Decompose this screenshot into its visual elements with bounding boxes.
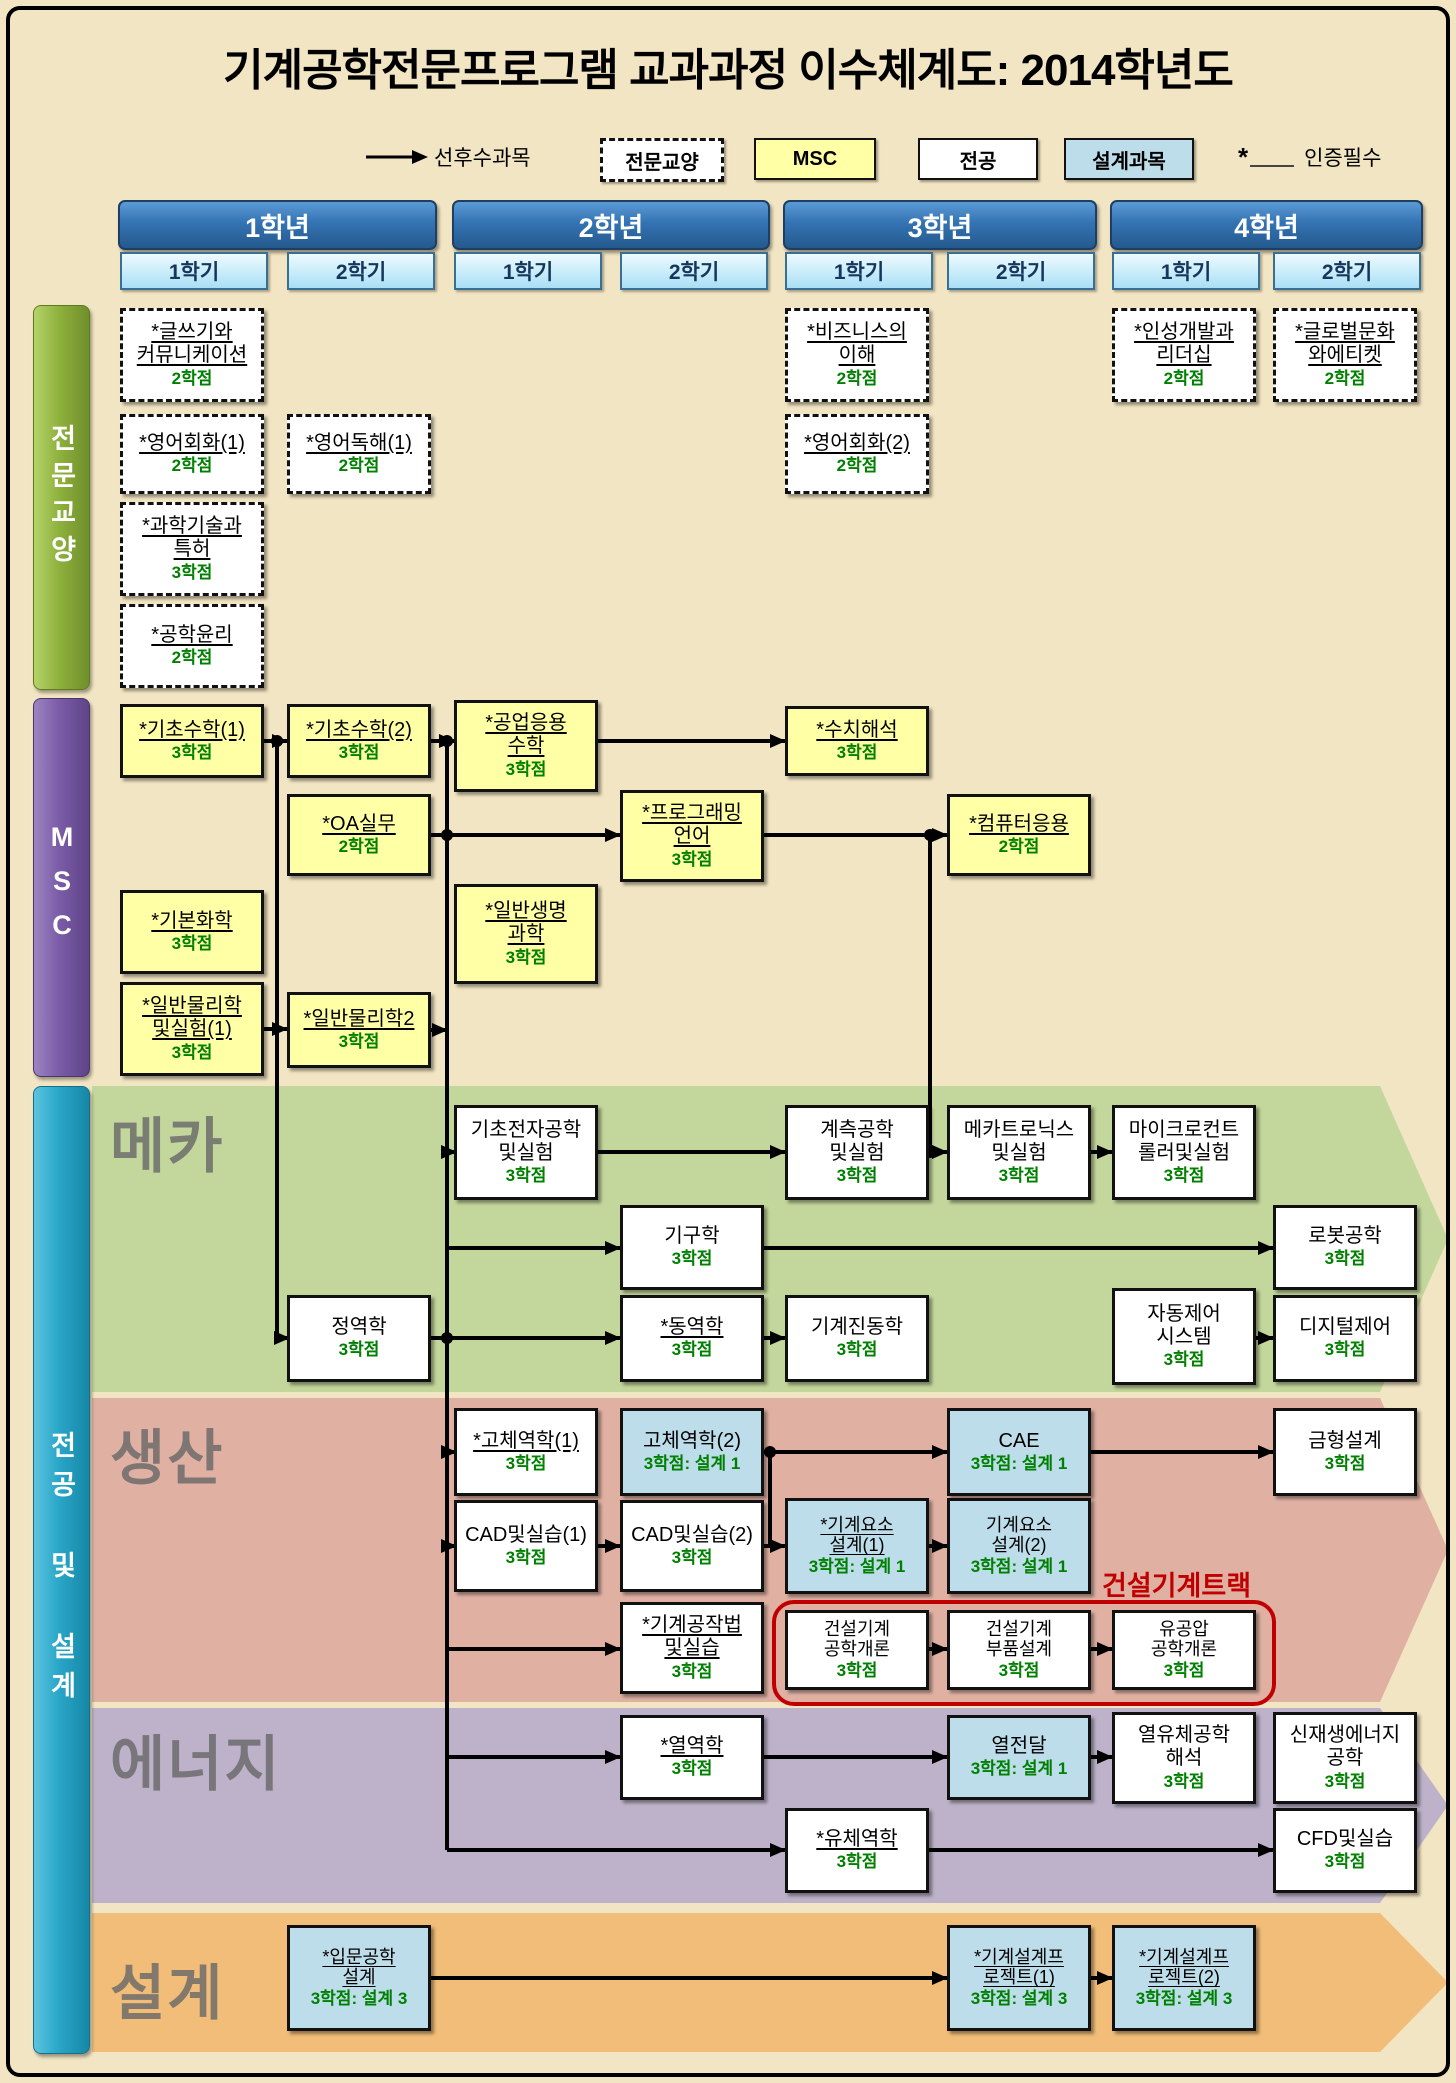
course-design-project-2: *기계설계프로젝트(2)3학점: 설계 3 [1112,1925,1256,2031]
course-title-line: 기계진동학 [811,1316,903,1339]
course-title-line: 롤러및실험 [1138,1142,1230,1165]
course-instrumentation-lab: 계측공학및실험3학점 [785,1105,929,1200]
course-title-line: 정역학 [331,1316,386,1339]
course-credit: 3학점 [999,1660,1040,1681]
course-programming-language: *프로그래밍언어3학점 [620,790,764,882]
course-title-line: *기계공작법 [642,1614,742,1637]
course-title-line: *OA실무 [322,813,395,836]
course-title-line: 공학개론 [824,1639,890,1660]
course-manufacturing-practice: *기계공작법및실습3학점 [620,1602,764,1694]
legend-msc-box: MSC [754,138,876,180]
course-credit: 3학점 [837,1660,878,1681]
course-title-line: CAD및실습(1) [465,1524,587,1547]
course-mechanical-vibration: 기계진동학3학점 [785,1295,929,1382]
curriculum-flowchart-page: 기계공학전문프로그램 교과과정 이수체계도: 2014학년도 선후수과목 전문교… [0,0,1456,2083]
course-credit: 3학점: 설계 1 [971,1453,1068,1474]
course-title-line: *기본화학 [151,910,232,933]
junction-dot [441,829,453,841]
course-thermofluid-analysis: 열유체공학해석3학점 [1112,1712,1256,1804]
legend-cert-label: 인증필수 [1304,142,1381,172]
course-general-physics-lab-1: *일반물리학및실험(1)3학점 [120,982,264,1076]
course-cad-practice-2: CAD및실습(2)3학점 [620,1500,764,1592]
course-machine-element-design-1: *기계요소설계(1)3학점: 설계 1 [785,1498,929,1594]
course-title-line: 수학 [508,735,545,758]
course-title-line: *기계요소 [820,1515,893,1536]
course-title-line: 이해 [839,344,876,367]
course-personality-leadership: *인성개발과리더십2학점 [1112,308,1256,402]
course-credit: 2학점 [339,836,380,857]
course-credit: 3학점 [837,742,878,763]
course-credit: 2학점 [1325,368,1366,389]
course-title-line: 부품설계 [986,1639,1052,1660]
course-construction-machinery-parts: 건설기계부품설계3학점 [947,1610,1091,1690]
course-credit: 3학점 [1325,1453,1366,1474]
semester-2-2: 2학기 [620,252,768,290]
course-credit: 3학점 [506,759,547,780]
semester-3-2: 2학기 [947,252,1095,290]
course-title-line: 공학개론 [1151,1639,1217,1660]
course-credit: 2학점 [999,836,1040,857]
course-title-line: 유공압 [1159,1619,1209,1640]
course-title-line: 커뮤니케이션 [137,344,247,367]
course-title-line: 과학 [508,923,545,946]
course-title-line: *영어회화(2) [804,432,910,455]
course-title-line: 로봇공학 [1308,1225,1382,1248]
course-mechatronics-lab: 메카트로닉스및실험3학점 [947,1105,1091,1200]
course-credit: 3학점 [837,1165,878,1186]
course-title-line: 로젝트(2) [1148,1967,1220,1988]
course-thermodynamics: *열역학3학점 [620,1715,764,1800]
course-dynamics: *동역학3학점 [620,1295,764,1382]
course-english-reading-1: *영어독해(1)2학점 [287,414,431,494]
course-cae: CAE3학점: 설계 1 [947,1408,1091,1496]
course-title-line: 해석 [1166,1747,1203,1770]
course-hydraulics-pneumatics: 유공압공학개론3학점 [1112,1610,1256,1690]
course-cad-practice-1: CAD및실습(1)3학점 [454,1500,598,1592]
course-global-culture-etiquette: *글로벌문화와에티켓2학점 [1273,308,1417,402]
course-title-line: 언어 [674,825,711,848]
course-business-understanding: *비즈니스의이해2학점 [785,308,929,402]
year-header-3: 3학년 [783,200,1097,250]
course-construction-machinery-intro: 건설기계공학개론3학점 [785,1610,929,1690]
year-header-4: 4학년 [1110,200,1423,250]
course-credit: 2학점 [172,647,213,668]
course-title-line: 기초전자공학 [471,1119,581,1142]
course-engineering-ethics: *공학윤리2학점 [120,604,264,688]
course-title-line: *비즈니스의 [807,321,907,344]
course-solid-mechanics-2: 고체역학(2)3학점: 설계 1 [620,1408,764,1496]
course-title-line: 시스템 [1156,1326,1211,1349]
course-intro-engineering-design: *입문공학설계3학점: 설계 3 [287,1925,431,2031]
course-credit: 3학점 [672,1758,713,1779]
course-credit: 3학점 [1164,1349,1205,1370]
legend-design-box: 설계과목 [1064,138,1194,180]
course-credit: 3학점: 설계 1 [809,1556,906,1577]
course-title-line: 고체역학(2) [643,1430,741,1453]
course-title-line: 건설기계 [824,1619,890,1640]
course-credit: 3학점 [339,742,380,763]
course-title-line: *입문공학 [322,1947,395,1968]
course-credit: 3학점 [506,947,547,968]
course-credit: 3학점 [999,1165,1040,1186]
course-credit: 3학점 [506,1453,547,1474]
course-title-line: 리더십 [1156,344,1211,367]
course-title-line: 및실습 [664,1637,719,1660]
course-credit: 3학점 [672,1661,713,1682]
course-title-line: 로젝트(1) [983,1967,1055,1988]
course-heat-transfer: 열전달3학점: 설계 1 [947,1715,1091,1800]
course-title-line: 열전달 [991,1735,1046,1758]
course-credit: 3학점 [1164,1660,1205,1681]
course-basic-chemistry: *기본화학3학점 [120,890,264,974]
course-credit: 3학점 [837,1339,878,1360]
course-title-line: 메카트로닉스 [964,1119,1074,1142]
course-kinematics: 기구학3학점 [620,1205,764,1290]
course-title-line: *글로벌문화 [1295,321,1395,344]
underline-icon [1250,147,1294,167]
course-title-line: *유체역학 [816,1828,897,1851]
legend-liberal-box: 전문교양 [600,138,724,182]
course-title-line: *일반생명 [485,900,566,923]
course-title-line: 와에티켓 [1308,344,1382,367]
legend-major-box: 전공 [918,138,1038,180]
course-title-line: 계측공학 [820,1119,894,1142]
course-machine-element-design-2: 기계요소설계(2)3학점: 설계 1 [947,1498,1091,1594]
band-label-production: 생산 [110,1410,224,1497]
course-credit: 3학점 [172,1042,213,1063]
course-title-line: 및실험 [829,1142,884,1165]
semester-2-1: 1학기 [454,252,602,290]
course-credit: 3학점: 설계 3 [1136,1988,1233,2009]
course-title-line: *공학윤리 [151,624,232,647]
course-science-tech-patent: *과학기술과특허3학점 [120,502,264,596]
course-credit: 3학점 [1325,1771,1366,1792]
course-credit: 2학점 [837,368,878,389]
course-title-line: CAE [998,1430,1039,1453]
course-title-line: 및실험 [498,1142,553,1165]
semester-4-1: 1학기 [1112,252,1260,290]
course-credit: 3학점 [172,562,213,583]
course-title-line: 설계(2) [991,1535,1046,1556]
course-general-physics-2: *일반물리학23학점 [287,992,431,1068]
course-credit: 3학점: 설계 1 [971,1758,1068,1779]
course-title-line: *고체역학(1) [473,1430,579,1453]
course-title-line: *기초수학(2) [306,719,412,742]
page-title: 기계공학전문프로그램 교과과정 이수체계도: 2014학년도 [0,34,1456,98]
course-credit: 2학점 [172,455,213,476]
course-engineering-applied-math: *공업응용수학3학점 [454,700,598,792]
course-title-line: *공업응용 [485,712,566,735]
course-english-conversation-1: *영어회화(1)2학점 [120,414,264,494]
course-credit: 3학점 [1164,1165,1205,1186]
course-numerical-analysis: *수치해석3학점 [785,706,929,776]
course-automatic-control-system: 자동제어시스템3학점 [1112,1288,1256,1385]
course-title-line: 디지털제어 [1299,1316,1391,1339]
semester-3-1: 1학기 [785,252,933,290]
course-cfd-practice: CFD및실습3학점 [1273,1808,1417,1893]
course-statics: 정역학3학점 [287,1295,431,1382]
course-credit: 3학점 [1325,1851,1366,1872]
sidebar-liberal: 전문교양 [33,305,90,690]
star-icon: * [1238,142,1248,173]
course-credit: 3학점 [506,1165,547,1186]
course-microcontroller-lab: 마이크로컨트롤러및실험3학점 [1112,1105,1256,1200]
course-title-line: 설계 [342,1967,375,1988]
course-title-line: *영어독해(1) [306,432,412,455]
course-credit: 3학점 [1164,1771,1205,1792]
course-title-line: *인성개발과 [1134,321,1234,344]
prerequisite-arrow-icon [366,138,428,176]
course-title-line: *동역학 [661,1316,724,1339]
course-title-line: *기계설계프 [974,1947,1064,1968]
course-credit: 2학점 [172,368,213,389]
construction-track-label: 건설기계트랙 [1102,1564,1251,1603]
course-credit: 3학점: 설계 1 [971,1556,1068,1577]
course-credit: 3학점 [672,1248,713,1269]
junction-dot [271,735,283,747]
course-title-line: *영어회화(1) [139,432,245,455]
course-oa-practice: *OA실무2학점 [287,794,431,876]
course-writing-communication: *글쓰기와커뮤니케이션2학점 [120,308,264,402]
course-title-line: *일반물리학 [142,995,242,1018]
course-title-line: *과학기술과 [142,515,242,538]
course-credit: 3학점 [837,1851,878,1872]
course-credit: 3학점: 설계 3 [971,1988,1068,2009]
course-title-line: CFD및실습 [1297,1828,1393,1851]
course-robotics: 로봇공학3학점 [1273,1205,1417,1290]
course-title-line: 기구학 [664,1225,719,1248]
course-credit: 3학점 [1325,1339,1366,1360]
course-credit: 3학점 [672,1547,713,1568]
course-title-line: 및실험(1) [152,1018,232,1041]
band-label-mecha: 메카 [110,1098,224,1185]
course-credit: 3학점: 설계 3 [311,1988,408,2009]
course-mold-design: 금형설계3학점 [1273,1408,1417,1496]
course-title-line: *수치해석 [816,719,897,742]
course-credit: 3학점 [1325,1248,1366,1269]
sidebar-major: 전공 및 설계 [33,1086,90,2054]
junction-dot [924,829,936,841]
course-title-line: *일반물리학2 [304,1008,415,1031]
course-title-line: 신재생에너지 [1290,1724,1400,1747]
course-basic-electronics-lab: 기초전자공학및실험3학점 [454,1105,598,1200]
junction-dot [441,735,453,747]
course-title-line: *열역학 [661,1735,724,1758]
course-digital-control: 디지털제어3학점 [1273,1295,1417,1382]
course-title-line: *글쓰기와 [151,321,232,344]
course-credit: 3학점 [339,1339,380,1360]
course-title-line: *컴퓨터응용 [969,813,1069,836]
legend: 선후수과목 전문교양 MSC 전공 설계과목 * 인증필수 [0,138,1456,180]
course-title-line: 건설기계 [986,1619,1052,1640]
course-credit: 3학점: 설계 1 [644,1453,741,1474]
semester-1-1: 1학기 [120,252,268,290]
course-design-project-1: *기계설계프로젝트(1)3학점: 설계 3 [947,1925,1091,2031]
course-solid-mechanics-1: *고체역학(1)3학점 [454,1408,598,1496]
course-credit: 3학점 [172,933,213,954]
course-credit: 3학점 [339,1031,380,1052]
course-general-life-science: *일반생명과학3학점 [454,884,598,984]
course-credit: 2학점 [837,455,878,476]
course-basic-math-1: *기초수학(1)3학점 [120,704,264,778]
course-title-line: 공학 [1327,1747,1364,1770]
course-title-line: 특허 [174,538,211,561]
semester-4-2: 2학기 [1273,252,1421,290]
course-title-line: 자동제어 [1147,1303,1221,1326]
semester-1-2: 2학기 [287,252,435,290]
year-header-1: 1학년 [118,200,437,250]
course-title-line: *기계설계프 [1139,1947,1229,1968]
course-title-line: 마이크로컨트 [1129,1119,1239,1142]
course-title-line: CAD및실습(2) [631,1524,753,1547]
course-credit: 2학점 [1164,368,1205,389]
course-title-line: 및실험 [991,1142,1046,1165]
course-basic-math-2: *기초수학(2)3학점 [287,704,431,778]
course-title-line: 열유체공학 [1138,1724,1230,1747]
course-english-conversation-2: *영어회화(2)2학점 [785,414,929,494]
band-label-energy: 에너지 [110,1716,282,1803]
course-title-line: *기초수학(1) [139,719,245,742]
course-title-line: 금형설계 [1308,1430,1382,1453]
course-fluid-mechanics: *유체역학3학점 [785,1808,929,1893]
course-title-line: *프로그래밍 [642,802,742,825]
course-credit: 3학점 [672,1339,713,1360]
course-credit: 3학점 [506,1547,547,1568]
course-credit: 3학점 [672,849,713,870]
course-title-line: 설계(1) [829,1535,884,1556]
course-computer-application: *컴퓨터응용2학점 [947,794,1091,876]
course-credit: 3학점 [172,742,213,763]
course-title-line: 기계요소 [986,1515,1052,1536]
course-credit: 2학점 [339,455,380,476]
sidebar-msc: MSC [33,698,90,1077]
legend-arrow-label: 선후수과목 [434,138,531,176]
legend-certification-required: * 인증필수 [1238,138,1381,176]
band-label-design: 설계 [110,1945,224,2032]
course-renewable-energy: 신재생에너지공학3학점 [1273,1712,1417,1804]
year-header-2: 2학년 [452,200,770,250]
